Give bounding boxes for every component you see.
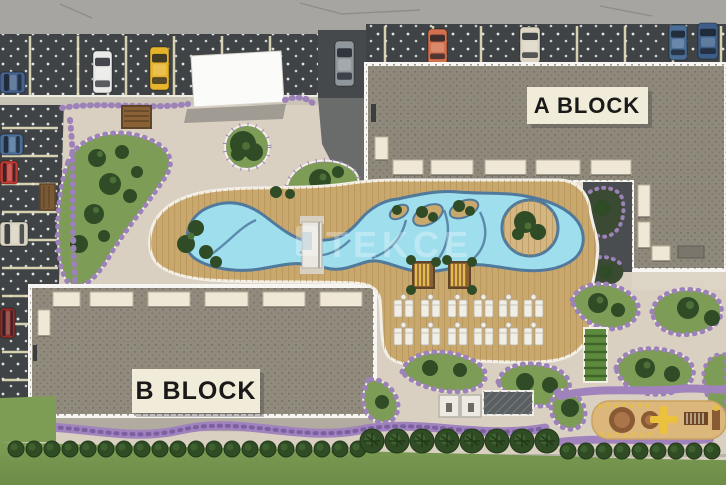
block-b-label: B BLOCK <box>136 377 257 405</box>
car <box>428 29 447 64</box>
car <box>0 134 23 155</box>
car <box>669 25 687 60</box>
block-a-label: A BLOCK <box>534 93 640 118</box>
car <box>0 72 25 93</box>
car <box>0 222 28 246</box>
car <box>520 27 540 63</box>
block-b-building: B BLOCK <box>25 286 375 432</box>
site-plan-render: A BLOCK B BLOCK <box>0 0 726 485</box>
car <box>335 41 354 86</box>
climber-ladder <box>684 412 708 425</box>
car <box>0 161 18 184</box>
vegetable-garden <box>584 328 607 382</box>
playground <box>592 401 726 439</box>
car <box>0 308 15 338</box>
entrance-canopy <box>184 51 286 123</box>
pool-island <box>502 200 558 256</box>
block-a-label-plate: A BLOCK <box>527 87 652 128</box>
garden-plaza-circle <box>225 125 269 169</box>
block-b-label-plate: B BLOCK <box>132 369 264 417</box>
storage-roof <box>483 391 533 415</box>
lawn-corner <box>0 396 56 442</box>
car <box>698 23 718 59</box>
car <box>93 51 112 93</box>
site-plan-canvas: A BLOCK B BLOCK <box>0 0 726 485</box>
car <box>150 47 169 90</box>
